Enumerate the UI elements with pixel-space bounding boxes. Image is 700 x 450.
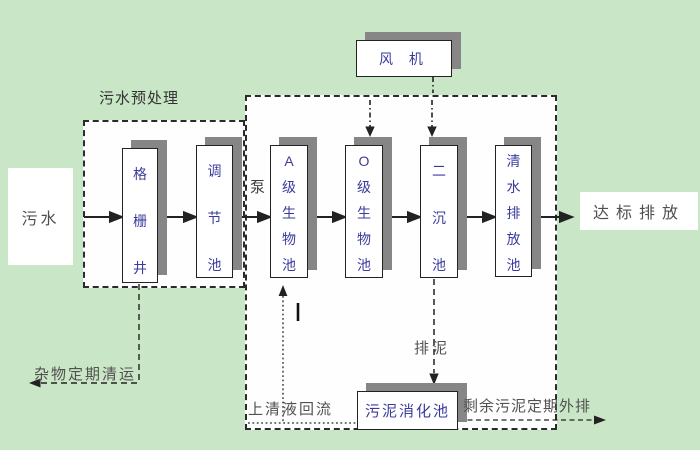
pump-label: 泵 bbox=[250, 176, 265, 197]
debris-removal-label: 杂物定期清运 bbox=[34, 363, 136, 384]
process-flow-diagram: 污水 达标排放 格栅井 调节池 A级生物池 O级生物池 二沉池 清水排放池 风 … bbox=[0, 0, 700, 450]
sludge-digestion-tank-box: 污泥消化池 bbox=[357, 391, 458, 430]
sewage-label: 污水 bbox=[21, 205, 59, 229]
blower-box: 风 机 bbox=[356, 40, 452, 77]
clear-water-discharge-tank-box: 清水排放池 bbox=[495, 145, 532, 277]
sludge-discharge-label: 排泥 bbox=[414, 337, 450, 358]
grid-well-label: 格栅井 bbox=[132, 151, 148, 283]
regulating-tank-box: 调节池 bbox=[196, 145, 233, 278]
sludge-digestion-tank-label: 污泥消化池 bbox=[365, 400, 450, 421]
pretreatment-region-label: 污水预处理 bbox=[99, 87, 179, 108]
regulating-tank-label: 调节池 bbox=[207, 148, 223, 278]
standard-discharge-box: 达标排放 bbox=[580, 192, 698, 230]
arrow-right-icon bbox=[560, 212, 572, 221]
o-stage-bio-tank-box: O级生物池 bbox=[345, 145, 383, 278]
standard-discharge-label: 达标排放 bbox=[593, 199, 685, 223]
sewage-source-box: 污水 bbox=[8, 168, 73, 265]
blower-label: 风 机 bbox=[379, 49, 429, 69]
excess-sludge-out-label: 剩余污泥定期外排 bbox=[463, 395, 591, 416]
supernatant-return-label: 上清液回流 bbox=[248, 398, 333, 419]
secondary-sedimentation-tank-label: 二沉池 bbox=[431, 148, 447, 278]
a-stage-bio-tank-label: A级生物池 bbox=[281, 148, 297, 278]
arrow-right-icon bbox=[594, 416, 606, 425]
a-stage-bio-tank-box: A级生物池 bbox=[270, 145, 308, 278]
clear-water-discharge-tank-label: 清水排放池 bbox=[506, 148, 522, 277]
grid-well-box: 格栅井 bbox=[122, 148, 158, 283]
o-stage-bio-tank-label: O级生物池 bbox=[356, 148, 372, 278]
secondary-sedimentation-tank-box: 二沉池 bbox=[420, 145, 458, 278]
